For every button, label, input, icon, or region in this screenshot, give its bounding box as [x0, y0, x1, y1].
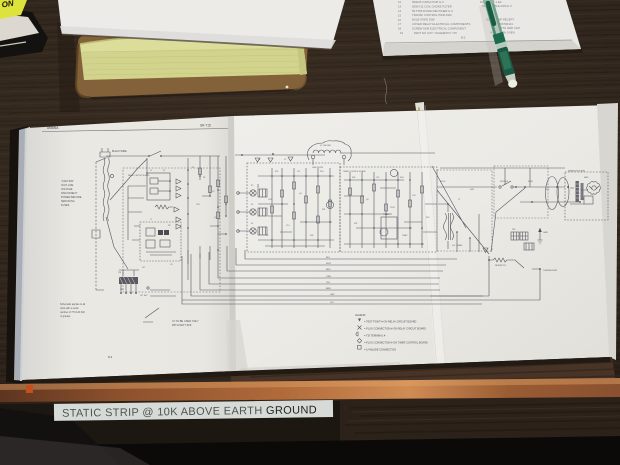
svg-text:MAGNETRON ASM: MAGNETRON ASM [568, 170, 585, 173]
svg-text:Q6: Q6 [366, 199, 369, 201]
svg-text:R1: R1 [203, 177, 205, 179]
svg-text:MTG GRD CLIP: MTG GRD CLIP [500, 26, 520, 30]
svg-text:RED: RED [326, 269, 331, 271]
svg-text:BLK: BLK [326, 257, 331, 259]
svg-text:K3: K3 [251, 204, 253, 206]
svg-text:TRIAC: TRIAC [402, 234, 408, 237]
svg-text:C24: C24 [412, 195, 415, 197]
svg-text:P1: P1 [258, 159, 260, 161]
svg-text:R41: R41 [352, 177, 355, 179]
svg-text:Schematic applies to all: Schematic applies to all [60, 303, 86, 306]
svg-text:D6790101: D6790101 [500, 22, 513, 26]
svg-text:56-5789 DIODE RECTIFIER H.V.: 56-5789 DIODE RECTIFIER H.V. [412, 9, 454, 13]
svg-text:H.V. TRANS: H.V. TRANS [452, 244, 463, 247]
svg-text:POWER BEFORE: POWER BEFORE [61, 196, 82, 199]
svg-text:LEGEND:: LEGEND: [355, 314, 366, 317]
svg-text:D2: D2 [266, 235, 268, 237]
svg-text:17: 17 [398, 22, 402, 26]
svg-text:SR-715: SR-715 [200, 124, 211, 128]
svg-text:WHT: WHT [326, 263, 332, 265]
svg-text:FUSES: FUSES [61, 204, 70, 207]
svg-text:16: 16 [398, 18, 402, 22]
svg-text:12: 12 [398, 0, 402, 4]
svg-text:C8: C8 [170, 264, 172, 266]
svg-text:THERMOSTAT: THERMOSTAT [543, 269, 558, 272]
svg-text:CR8: CR8 [268, 199, 272, 201]
svg-text:BRN: BRN [326, 288, 331, 290]
svg-text:13: 13 [398, 5, 402, 9]
svg-text:PRIM: PRIM [528, 181, 533, 183]
svg-text:INTLK: INTLK [440, 181, 446, 183]
svg-text:F1: F1 [192, 167, 194, 169]
svg-text:PRI: PRI [118, 272, 122, 274]
svg-text:R35: R35 [310, 235, 313, 237]
svg-text:19: 19 [400, 31, 404, 35]
svg-text:C11: C11 [297, 171, 300, 173]
svg-text:DISCONNECT: DISCONNECT [61, 192, 78, 195]
svg-text:number of 770 120 002: number of 770 120 002 [60, 311, 85, 314]
svg-text:C14: C14 [286, 225, 289, 227]
svg-text:8-4: 8-4 [108, 355, 113, 359]
svg-text:RESISTOR: RESISTOR [495, 265, 506, 267]
svg-text:MAG: MAG [584, 176, 589, 179]
svg-text:R44: R44 [400, 177, 403, 179]
svg-text:59004-11 COIL CHOKE FILTER: 59004-11 COIL CHOKE FILTER [412, 4, 452, 8]
svg-text:units with a serial: units with a serial [60, 307, 79, 310]
svg-text:RELAY CIRCUIT BOARD: RELAY CIRCUIT BOARD [128, 174, 150, 177]
svg-text:K1: K1 [163, 170, 165, 172]
svg-text:= PLUG CONNECTION # ON TIMER C: = PLUG CONNECTION # ON TIMER CONTROL BOA… [364, 342, 428, 345]
svg-text:= 1/4 BLADE CONNECTION: = 1/4 BLADE CONNECTION [364, 349, 396, 352]
svg-text:LINE FILTER: LINE FILTER [312, 167, 324, 169]
svg-text:T2: T2 [458, 199, 460, 201]
svg-text:SEC: SEC [120, 289, 125, 291]
svg-text:WITH DET7.5LB: WITH DET7.5LB [172, 323, 192, 327]
svg-text:J4 TO BE USED ONLY: J4 TO BE USED ONLY [172, 319, 199, 323]
svg-text:VOLTAGE: VOLTAGE [61, 188, 73, 191]
svg-text:C3: C3 [212, 191, 214, 193]
svg-text:= TSI TERMINAL #: = TSI TERMINAL # [364, 335, 386, 338]
svg-text:Q4: Q4 [299, 193, 302, 195]
svg-text:R9: R9 [168, 225, 170, 227]
svg-text:GRD: GRD [543, 232, 548, 234]
svg-text:= PLUG CONNECTION # ON RELAY C: = PLUG CONNECTION # ON RELAY CIRCUIT BOA… [364, 328, 426, 331]
svg-text:C21: C21 [376, 177, 379, 179]
svg-text:TB1: TB1 [512, 229, 515, 231]
svg-text:= TEST POINT # ON RELAY CIRCUI: = TEST POINT # ON RELAY CIRCUIT BOARD [364, 321, 417, 324]
svg-text:L1 CHOKE: L1 CHOKE [320, 145, 331, 147]
svg-text:K2: K2 [251, 185, 253, 187]
svg-text:MON SW: MON SW [500, 181, 508, 183]
svg-text:ORN: ORN [326, 276, 331, 278]
svg-text:R52: R52 [426, 217, 429, 219]
svg-text:Q1: Q1 [214, 217, 217, 219]
svg-text:15: 15 [398, 13, 402, 17]
svg-text:CR2: CR2 [196, 204, 200, 206]
svg-text:GRY: GRY [330, 294, 335, 296]
svg-text:K4: K4 [251, 223, 253, 225]
svg-text:R24: R24 [320, 171, 323, 173]
svg-text:LVT SEC: LVT SEC [140, 295, 148, 297]
svg-text:or greater.: or greater. [60, 315, 71, 318]
svg-text:R31: R31 [322, 209, 325, 211]
svg-text:"CAUTION": "CAUTION" [61, 180, 74, 183]
svg-text:SERVICING: SERVICING [61, 200, 75, 203]
svg-text:R21: R21 [275, 171, 278, 173]
svg-text:P2: P2 [284, 159, 286, 161]
svg-text:IN AT LINE: IN AT LINE [61, 184, 74, 187]
svg-text:SW1: SW1 [470, 189, 474, 191]
svg-text:J2: J2 [150, 170, 152, 172]
svg-text:SCREW ASM ELECTRICAL COMPONENT: SCREW ASM ELECTRICAL COMPONENT [412, 26, 466, 30]
svg-text:B-2: B-2 [461, 36, 466, 40]
svg-text:VIO: VIO [330, 302, 334, 304]
svg-text:BULB OVEN 25W: BULB OVEN 25W [412, 18, 435, 22]
svg-text:T1: T1 [150, 219, 152, 221]
svg-text:TRANSF CONTROL PWR ASM: TRANSF CONTROL PWR ASM [412, 13, 452, 17]
svg-text:14: 14 [398, 9, 402, 13]
svg-text:COVER RELAY ELECTRICAL COMPONE: COVER RELAY ELECTRICAL COMPONENTS [412, 22, 471, 26]
svg-text:R47: R47 [354, 223, 357, 225]
svg-text:TIMER CONTROL BOARD: TIMER CONTROL BOARD [343, 170, 366, 173]
svg-text:BLACK WIRE: BLACK WIRE [112, 150, 127, 153]
svg-text:FM: FM [546, 189, 549, 191]
svg-text:AMANA: AMANA [47, 126, 59, 130]
svg-text:59002P CAPACITOR H.V.: 59002P CAPACITOR H.V. [412, 0, 445, 4]
svg-text:CR12: CR12 [390, 207, 395, 209]
svg-text:18: 18 [398, 27, 402, 31]
svg-text:PART NO LIST / SCHEMATIC 715: PART NO LIST / SCHEMATIC 715 [414, 31, 457, 35]
